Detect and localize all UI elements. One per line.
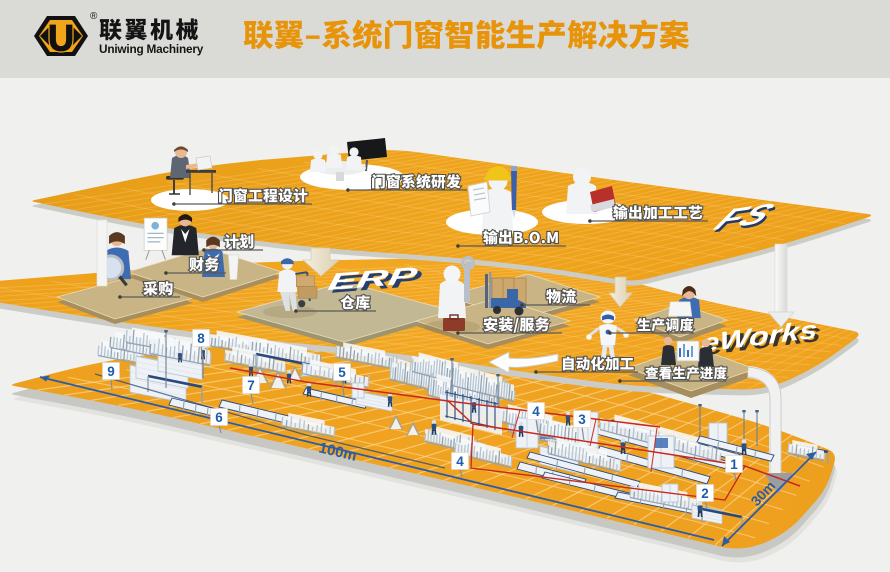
svg-text:输出加工工艺: 输出加工工艺 — [613, 202, 703, 223]
svg-text:门窗工程设计: 门窗工程设计 — [218, 185, 308, 206]
svg-text:生产调度: 生产调度 — [637, 315, 694, 335]
svg-text:7: 7 — [247, 378, 255, 393]
svg-text:联翼–系统门窗智能生产解决方案: 联翼–系统门窗智能生产解决方案 — [243, 11, 690, 55]
svg-text:采购: 采购 — [143, 278, 173, 299]
svg-text:2: 2 — [701, 486, 709, 501]
svg-text:5: 5 — [338, 365, 346, 380]
svg-text:4: 4 — [532, 404, 540, 419]
svg-text:门窗系统研发: 门窗系统研发 — [371, 171, 461, 192]
svg-text:查看生产进度: 查看生产进度 — [645, 362, 727, 382]
svg-text:1: 1 — [730, 457, 738, 472]
svg-text:Uniwing Machinery: Uniwing Machinery — [99, 42, 204, 56]
svg-text:3: 3 — [578, 412, 586, 427]
svg-text:自动化加工: 自动化加工 — [561, 353, 635, 374]
svg-text:6: 6 — [215, 410, 223, 425]
svg-text:物流: 物流 — [546, 286, 576, 307]
svg-text:安装/服务: 安装/服务 — [483, 314, 550, 335]
svg-text:计划: 计划 — [224, 231, 254, 252]
svg-text:财务: 财务 — [189, 254, 219, 275]
svg-text:9: 9 — [107, 364, 115, 379]
svg-text:8: 8 — [197, 331, 205, 346]
svg-text:4: 4 — [456, 454, 464, 469]
svg-text:®: ® — [90, 11, 98, 22]
svg-text:仓库: 仓库 — [340, 292, 370, 313]
svg-text:联翼机械: 联翼机械 — [99, 11, 201, 45]
svg-text:输出B.O.M: 输出B.O.M — [483, 227, 559, 248]
